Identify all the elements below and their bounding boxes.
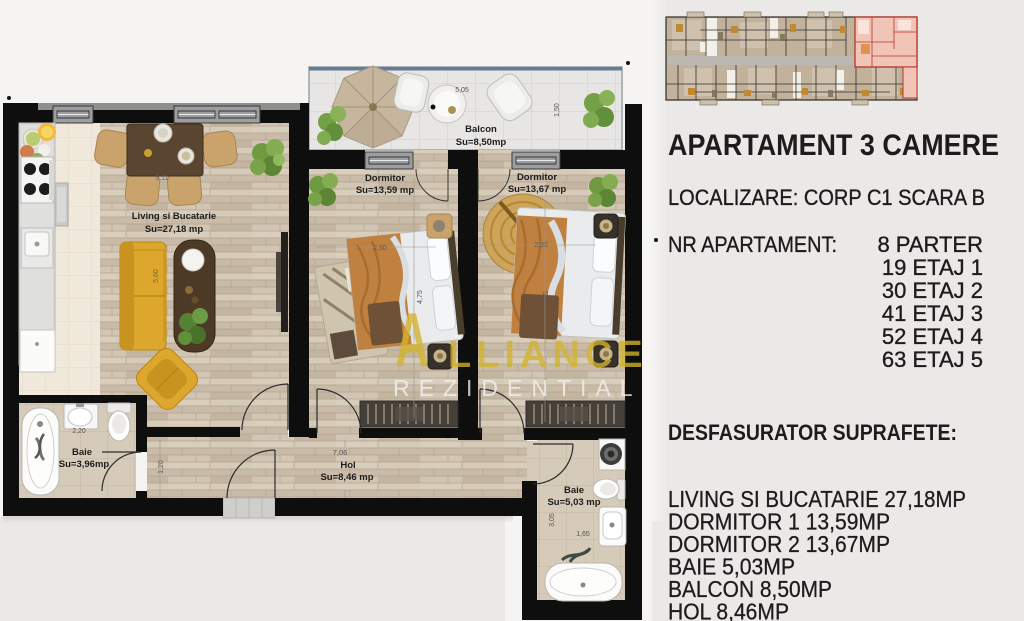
svg-text:Baie: Baie [72, 447, 92, 458]
svg-text:63 ETAJ 5: 63 ETAJ 5 [882, 347, 983, 372]
svg-text:5,60: 5,60 [153, 269, 160, 283]
svg-text:APARTAMENT 3 CAMERE: APARTAMENT 3 CAMERE [668, 129, 999, 162]
svg-text:Living si Bucatarie: Living si Bucatarie [132, 211, 216, 222]
svg-text:5,05: 5,05 [455, 87, 469, 94]
svg-text:5,11: 5,11 [155, 175, 168, 182]
svg-text:1,65: 1,65 [576, 531, 590, 538]
svg-text:4,75: 4,75 [543, 291, 550, 305]
svg-text:Su=5,03 mp: Su=5,03 mp [547, 497, 600, 508]
svg-text:Dormitor: Dormitor [365, 173, 405, 184]
svg-text:2,20: 2,20 [72, 428, 86, 435]
svg-text:Dormitor: Dormitor [517, 172, 557, 183]
svg-text:Su=8,50mp: Su=8,50mp [456, 137, 507, 148]
svg-text:7,06: 7,06 [333, 448, 348, 457]
svg-text:2,90: 2,90 [534, 242, 548, 249]
svg-text:Su=8,46 mp: Su=8,46 mp [320, 472, 373, 483]
svg-text:LLIANCE: LLIANCE [448, 334, 648, 376]
svg-text:2,90: 2,90 [373, 245, 387, 252]
svg-text:19 ETAJ 1: 19 ETAJ 1 [882, 255, 983, 280]
svg-text:Baie: Baie [564, 485, 584, 496]
svg-text:NR APARTAMENT:: NR APARTAMENT: [668, 232, 837, 257]
svg-text:HOL 8,46MP: HOL 8,46MP [668, 599, 789, 621]
svg-text:REZIDENTIAL: REZIDENTIAL [393, 375, 642, 401]
svg-text:1,50: 1,50 [554, 103, 561, 117]
svg-text:30 ETAJ 2: 30 ETAJ 2 [882, 278, 983, 303]
svg-text:8 PARTER: 8 PARTER [877, 232, 983, 257]
svg-text:Hol: Hol [340, 460, 355, 471]
svg-text:52 ETAJ 4: 52 ETAJ 4 [882, 324, 983, 349]
svg-text:41 ETAJ 3: 41 ETAJ 3 [882, 301, 983, 326]
svg-text:Balcon: Balcon [465, 124, 497, 135]
svg-text:LOCALIZARE: CORP C1 SCARA B: LOCALIZARE: CORP C1 SCARA B [668, 185, 985, 210]
svg-text:1,20: 1,20 [158, 460, 165, 474]
svg-text:3,05: 3,05 [549, 513, 556, 527]
svg-text:A: A [395, 299, 429, 383]
svg-text:DESFASURATOR SUPRAFETE:: DESFASURATOR SUPRAFETE: [668, 420, 957, 445]
svg-text:Su=13,67 mp: Su=13,67 mp [508, 184, 567, 195]
svg-text:Su=3,96mp: Su=3,96mp [59, 459, 110, 470]
svg-text:Su=27,18 mp: Su=27,18 mp [145, 224, 204, 235]
svg-text:Su=13,59 mp: Su=13,59 mp [356, 185, 415, 196]
